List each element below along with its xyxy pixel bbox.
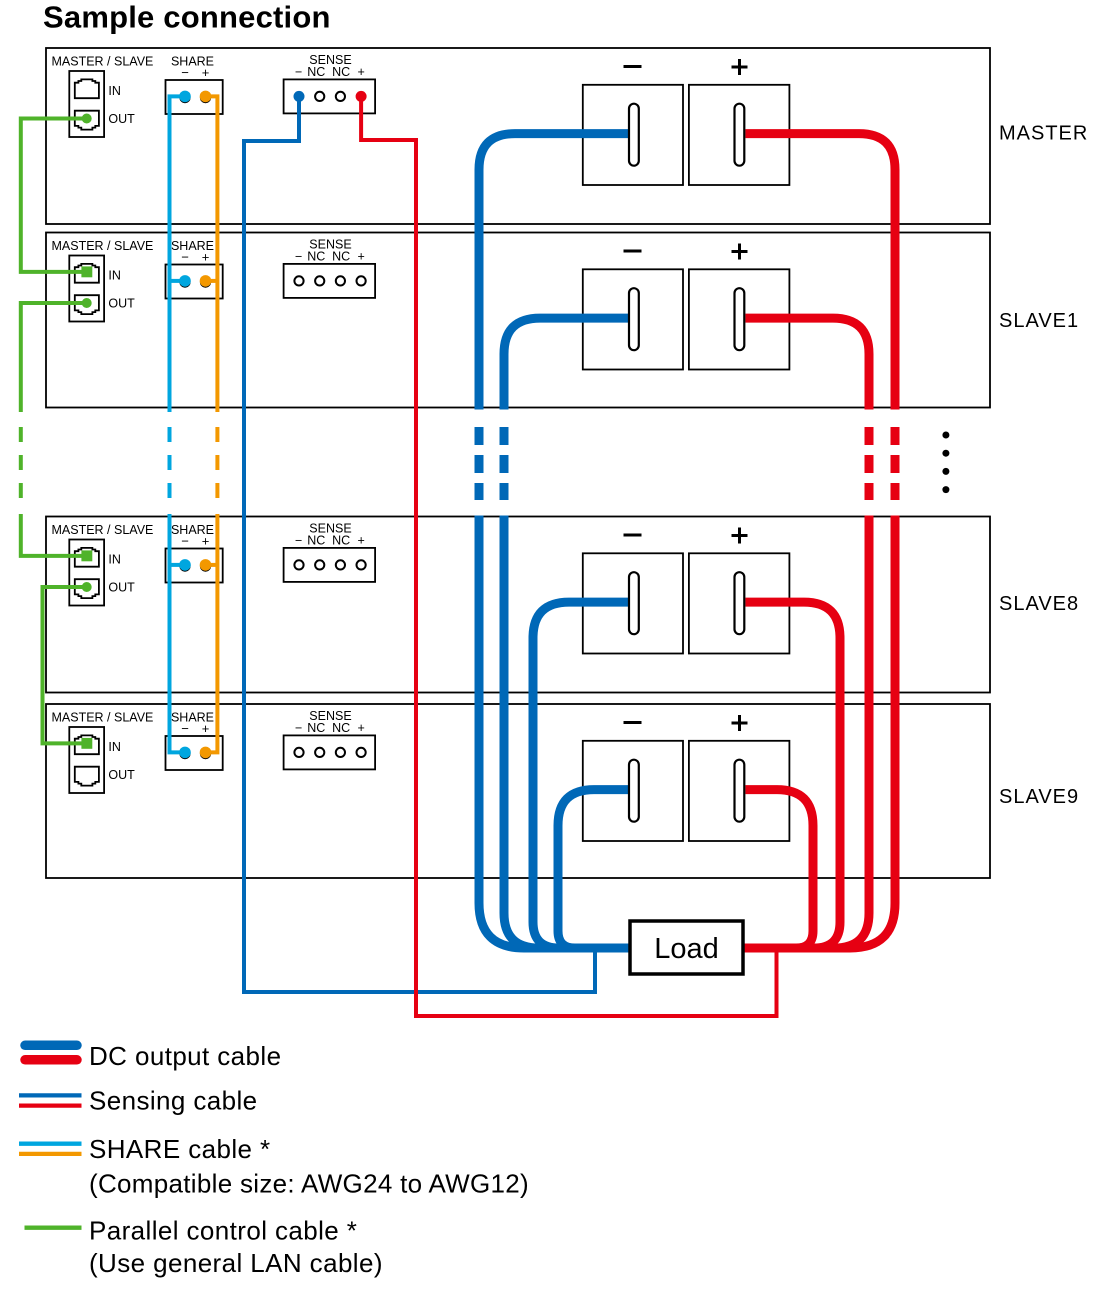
svg-text:SLAVE9: SLAVE9 xyxy=(999,786,1079,808)
svg-text:NC: NC xyxy=(332,65,350,79)
svg-text:+: + xyxy=(202,533,210,548)
svg-text:+: + xyxy=(358,65,365,79)
svg-text:−: − xyxy=(181,65,189,80)
svg-text:+: + xyxy=(358,534,365,548)
svg-text:SLAVE8: SLAVE8 xyxy=(999,593,1079,615)
svg-text:Sample connection: Sample connection xyxy=(43,0,331,35)
svg-text:IN: IN xyxy=(108,740,121,754)
svg-text:NC: NC xyxy=(307,534,325,548)
svg-text:MASTER / SLAVE: MASTER / SLAVE xyxy=(52,711,154,725)
svg-text:−: − xyxy=(295,721,302,735)
svg-text:+: + xyxy=(358,721,365,735)
svg-text:MASTER / SLAVE: MASTER / SLAVE xyxy=(52,523,154,537)
svg-text:+: + xyxy=(202,249,210,264)
svg-text:NC: NC xyxy=(307,65,325,79)
svg-text:OUT: OUT xyxy=(108,768,135,782)
svg-text:+: + xyxy=(202,65,210,80)
svg-text:MASTER / SLAVE: MASTER / SLAVE xyxy=(52,239,154,253)
svg-text:OUT: OUT xyxy=(108,581,135,595)
svg-text:NC: NC xyxy=(307,721,325,735)
svg-text:−: − xyxy=(181,533,189,548)
svg-text:Parallel control cable *: Parallel control cable * xyxy=(89,1216,357,1246)
svg-text:Load: Load xyxy=(654,933,719,965)
svg-text:NC: NC xyxy=(332,534,350,548)
svg-text:IN: IN xyxy=(108,553,121,567)
svg-text:MASTER: MASTER xyxy=(999,123,1088,145)
svg-text:−: − xyxy=(295,65,302,79)
svg-text:−: − xyxy=(295,534,302,548)
svg-text:NC: NC xyxy=(332,721,350,735)
svg-text:MASTER / SLAVE: MASTER / SLAVE xyxy=(52,55,154,69)
svg-text:+: + xyxy=(358,250,365,264)
svg-text:NC: NC xyxy=(332,250,350,264)
svg-text:−: − xyxy=(295,250,302,264)
svg-text:−: − xyxy=(181,721,189,736)
svg-text:(Use general LAN cable): (Use general LAN cable) xyxy=(89,1248,383,1278)
svg-text:Sensing cable: Sensing cable xyxy=(89,1086,258,1116)
svg-text:OUT: OUT xyxy=(108,112,135,126)
svg-text:IN: IN xyxy=(108,269,121,283)
svg-text:−: − xyxy=(181,249,189,264)
svg-text:OUT: OUT xyxy=(108,297,135,311)
svg-text:+: + xyxy=(202,721,210,736)
svg-text:NC: NC xyxy=(307,250,325,264)
svg-text:IN: IN xyxy=(108,84,121,98)
svg-text:SHARE cable *: SHARE cable * xyxy=(89,1134,271,1164)
svg-text:DC output cable: DC output cable xyxy=(89,1041,281,1071)
svg-text:(Compatible size: AWG24 to AWG: (Compatible size: AWG24 to AWG12) xyxy=(89,1169,529,1199)
svg-text:SLAVE1: SLAVE1 xyxy=(999,310,1079,332)
